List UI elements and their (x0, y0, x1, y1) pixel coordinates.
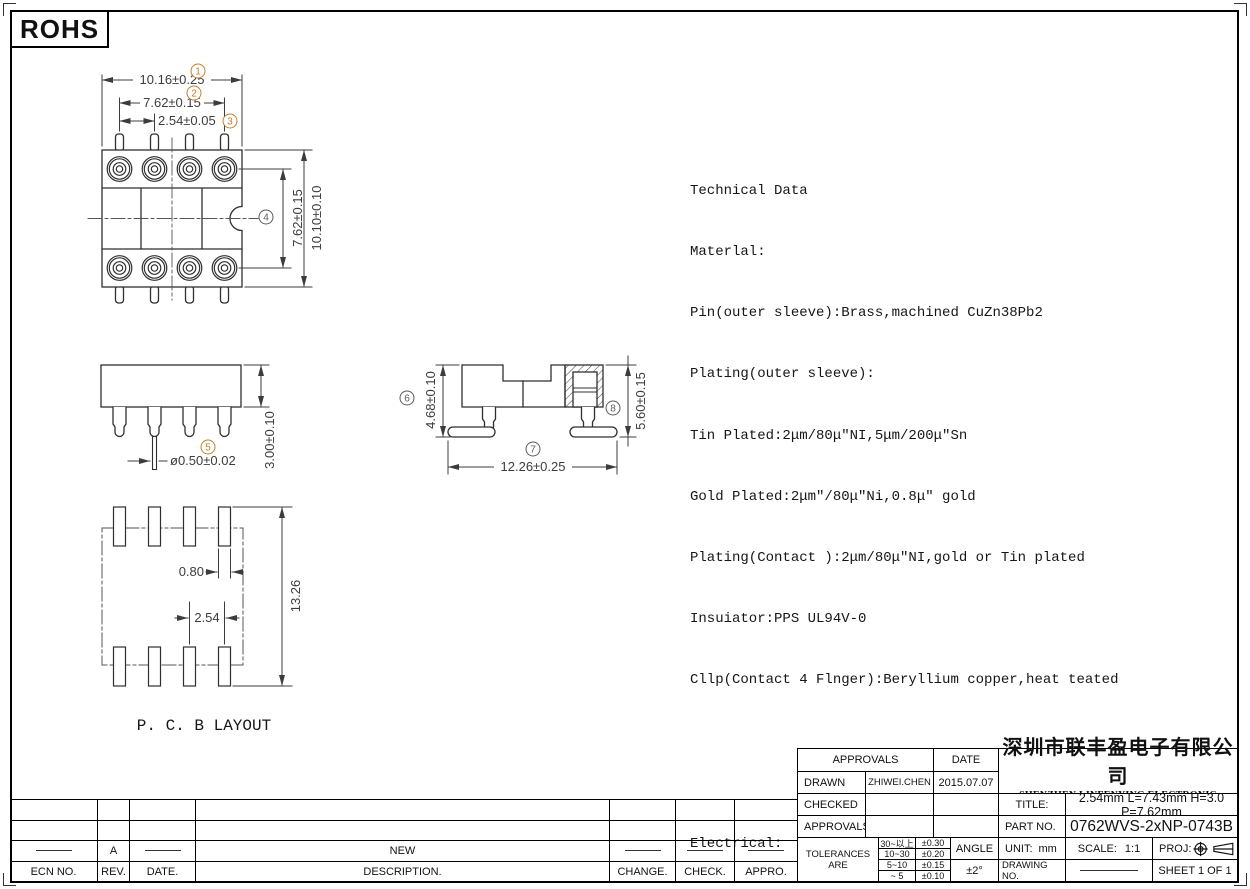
sheet-cell: SHEET 1 OF 1 (1153, 860, 1238, 882)
tolerance-value: ±0.15 (916, 860, 951, 871)
tech-line: Plating(outer sleeve): (690, 364, 1144, 384)
blank-dash (36, 850, 72, 851)
rev-rev-cell: A (98, 841, 130, 862)
part-no-value: 0762WVS-2xNP-0743B (1066, 816, 1238, 838)
callout-8: 8 (610, 404, 616, 415)
dim-pitch: 2.54±0.05 (158, 113, 216, 128)
dim-pcb-span: 13.26 (288, 580, 303, 613)
side-view-body (101, 365, 241, 407)
approvals-header: APPROVALS (798, 749, 934, 772)
scale-label: SCALE: (1078, 843, 1117, 855)
approvals-date (934, 816, 999, 838)
rev-cell (10, 800, 98, 821)
drawing-no-value (1066, 860, 1153, 882)
drawn-date: 2015.07.07 (934, 772, 999, 794)
rev-description-cell: NEW (196, 841, 610, 862)
rev-header-rev: REV. (98, 862, 130, 883)
rev-change-cell (610, 841, 676, 862)
rev-cell (130, 821, 196, 842)
tolerance-range: 10~30 (879, 849, 916, 860)
section-view-drawing: 4.68±0.10 6 12.26±0.25 7 5.60±0.15 8 (400, 356, 648, 474)
material-section: Technical Data Materlal: Pin(outer sleev… (690, 140, 1144, 732)
tolerance-range: ~ 5 (879, 871, 916, 882)
pcb-layout-caption: P. C. B LAYOUT (137, 717, 271, 735)
drawn-label: DRAWN (798, 772, 866, 794)
checked-name (866, 794, 934, 816)
proj-label: PROJ: (1159, 843, 1191, 855)
tech-line: Insuiator:PPS UL94V-0 (690, 609, 1144, 629)
rev-header-appro: APPRO. (735, 862, 797, 883)
dim-height-right: 5.60±0.15 (633, 372, 648, 430)
title-label: TITLE: (999, 794, 1066, 816)
part-no-label: PART NO. (999, 816, 1066, 838)
dim-pad-width: 0.80 (179, 564, 204, 579)
company-block: 深圳市联丰盈电子有限公司 SHENZHEN LINFENYING ELECTRO… (999, 749, 1238, 794)
proj-cell: PROJ: (1153, 838, 1238, 860)
tolerances-label: TOLERANCES ARE (798, 838, 879, 882)
section-dimensions: 4.68±0.10 6 12.26±0.25 7 5.60±0.15 8 (400, 356, 648, 474)
rev-header-ecn: ECN NO. (10, 862, 98, 883)
blank-dash (1080, 870, 1138, 871)
tech-line: Plating(Contact ):2μm/80μ″NI,gold or Tin… (690, 548, 1144, 568)
dim-height-overall: 10.10±0.10 (309, 186, 324, 251)
angle-value: ±2° (951, 860, 999, 882)
dim-row-spacing: 7.62±0.15 (290, 189, 305, 247)
dim-width-overall-section: 12.26±0.25 (501, 459, 566, 474)
unit-label: UNIT: (1005, 843, 1033, 855)
rev-cell (735, 821, 797, 842)
blank-dash (145, 850, 181, 851)
callout-3: 3 (227, 117, 233, 128)
side-view-drawing: 5 ø0.50±0.02 3.00±0.10 (101, 365, 277, 470)
scale-cell: SCALE:1:1 (1066, 838, 1153, 860)
rev-header-description: DESCRIPTION. (196, 862, 610, 883)
rev-header-check: CHECK. (676, 862, 735, 883)
unit-cell: UNIT:mm (999, 838, 1066, 860)
section-contact-cavity (573, 372, 597, 407)
tech-line: Gold Plated:2μm″/80μ″Ni,0.8μ″ gold (690, 487, 1144, 507)
tech-line: Technical Data (690, 181, 1144, 201)
revision-table: A NEW ECN NO. REV. DATE. DESCRIPTION. CH… (10, 799, 797, 882)
rev-cell (130, 800, 196, 821)
pcb-outline (102, 528, 243, 665)
tolerance-range: 5~10 (879, 860, 916, 871)
section-body (462, 365, 565, 407)
checked-date (934, 794, 999, 816)
third-angle-projection-icon (1193, 841, 1237, 857)
tech-line: Tin Plated:2μm/80μ″NI,5μm/200μ″Sn (690, 426, 1144, 446)
rev-cell (676, 800, 735, 821)
tolerance-value: ±0.30 (916, 838, 951, 849)
drawing-no-label: DRAWING NO. (999, 860, 1066, 882)
rev-cell (676, 821, 735, 842)
rev-ecn-cell (10, 841, 98, 862)
rev-check-cell (676, 841, 735, 862)
tech-line: Pin(outer sleeve):Brass,machined CuZn38P… (690, 303, 1144, 323)
rev-cell (610, 821, 676, 842)
approvals-label: APPROVALS (798, 816, 866, 838)
blank-dash (748, 850, 784, 851)
callout-6: 6 (404, 394, 410, 405)
engineering-drawings: 10.16±0.25 1 7.62±0.15 2 2.54±0.05 3 4 7… (0, 0, 680, 780)
rev-cell (10, 821, 98, 842)
datasheet-page: ROHS (0, 0, 1250, 889)
rev-description: NEW (390, 845, 416, 857)
section-pins (448, 407, 617, 437)
tech-line: Cllp(Contact 4 Flnger):Beryllium copper,… (690, 670, 1144, 690)
callout-1: 1 (195, 67, 201, 78)
company-name-cn: 深圳市联丰盈电子有限公司 (999, 731, 1237, 789)
top-view-drawing: 10.16±0.25 1 7.62±0.15 2 2.54±0.05 3 4 7… (88, 64, 324, 303)
callout-5: 5 (205, 443, 211, 454)
rev-cell (610, 800, 676, 821)
pcb-layout-drawing: 0.80 2.54 13.26 P. C. B LAYOUT (102, 507, 303, 735)
rev-value: A (110, 845, 117, 857)
checked-label: CHECKED (798, 794, 866, 816)
dim-pin-diameter: ø0.50±0.02 (170, 453, 236, 468)
title-block: APPROVALS DATE DRAWN ZHIWEI.CHEN 2015.07… (797, 748, 1238, 882)
title-value: 2.54mm L=7.43mm H=3.0 P=7.62mm (1066, 794, 1238, 816)
rev-header-date: DATE. (130, 862, 196, 883)
dim-height-left: 4.68±0.10 (423, 371, 438, 429)
approvals-name (866, 816, 934, 838)
tolerance-value: ±0.20 (916, 849, 951, 860)
blank-dash (687, 850, 723, 851)
callout-2: 2 (191, 89, 197, 100)
rev-cell (196, 800, 610, 821)
pcb-pads (114, 507, 231, 686)
dim-body-height: 3.00±0.10 (262, 411, 277, 469)
drawn-name: ZHIWEI.CHEN (866, 772, 934, 794)
blank-dash (625, 850, 661, 851)
scale-value: 1:1 (1125, 843, 1140, 855)
rev-cell (196, 821, 610, 842)
rev-cell (98, 800, 130, 821)
rev-appro-cell (735, 841, 797, 862)
tolerance-value: ±0.10 (916, 871, 951, 882)
angle-label: ANGLE (951, 838, 999, 860)
rev-date-cell (130, 841, 196, 862)
rev-cell (98, 821, 130, 842)
callout-4: 4 (263, 213, 269, 224)
dim-pcb-pitch: 2.54 (194, 610, 219, 625)
date-header: DATE (934, 749, 999, 772)
rev-header-change: CHANGE. (610, 862, 676, 883)
tech-line: Materlal: (690, 242, 1144, 262)
unit-value: mm (1039, 843, 1057, 855)
tolerance-range: 30~以上 (879, 838, 916, 849)
rev-cell (735, 800, 797, 821)
callout-7: 7 (530, 445, 536, 456)
